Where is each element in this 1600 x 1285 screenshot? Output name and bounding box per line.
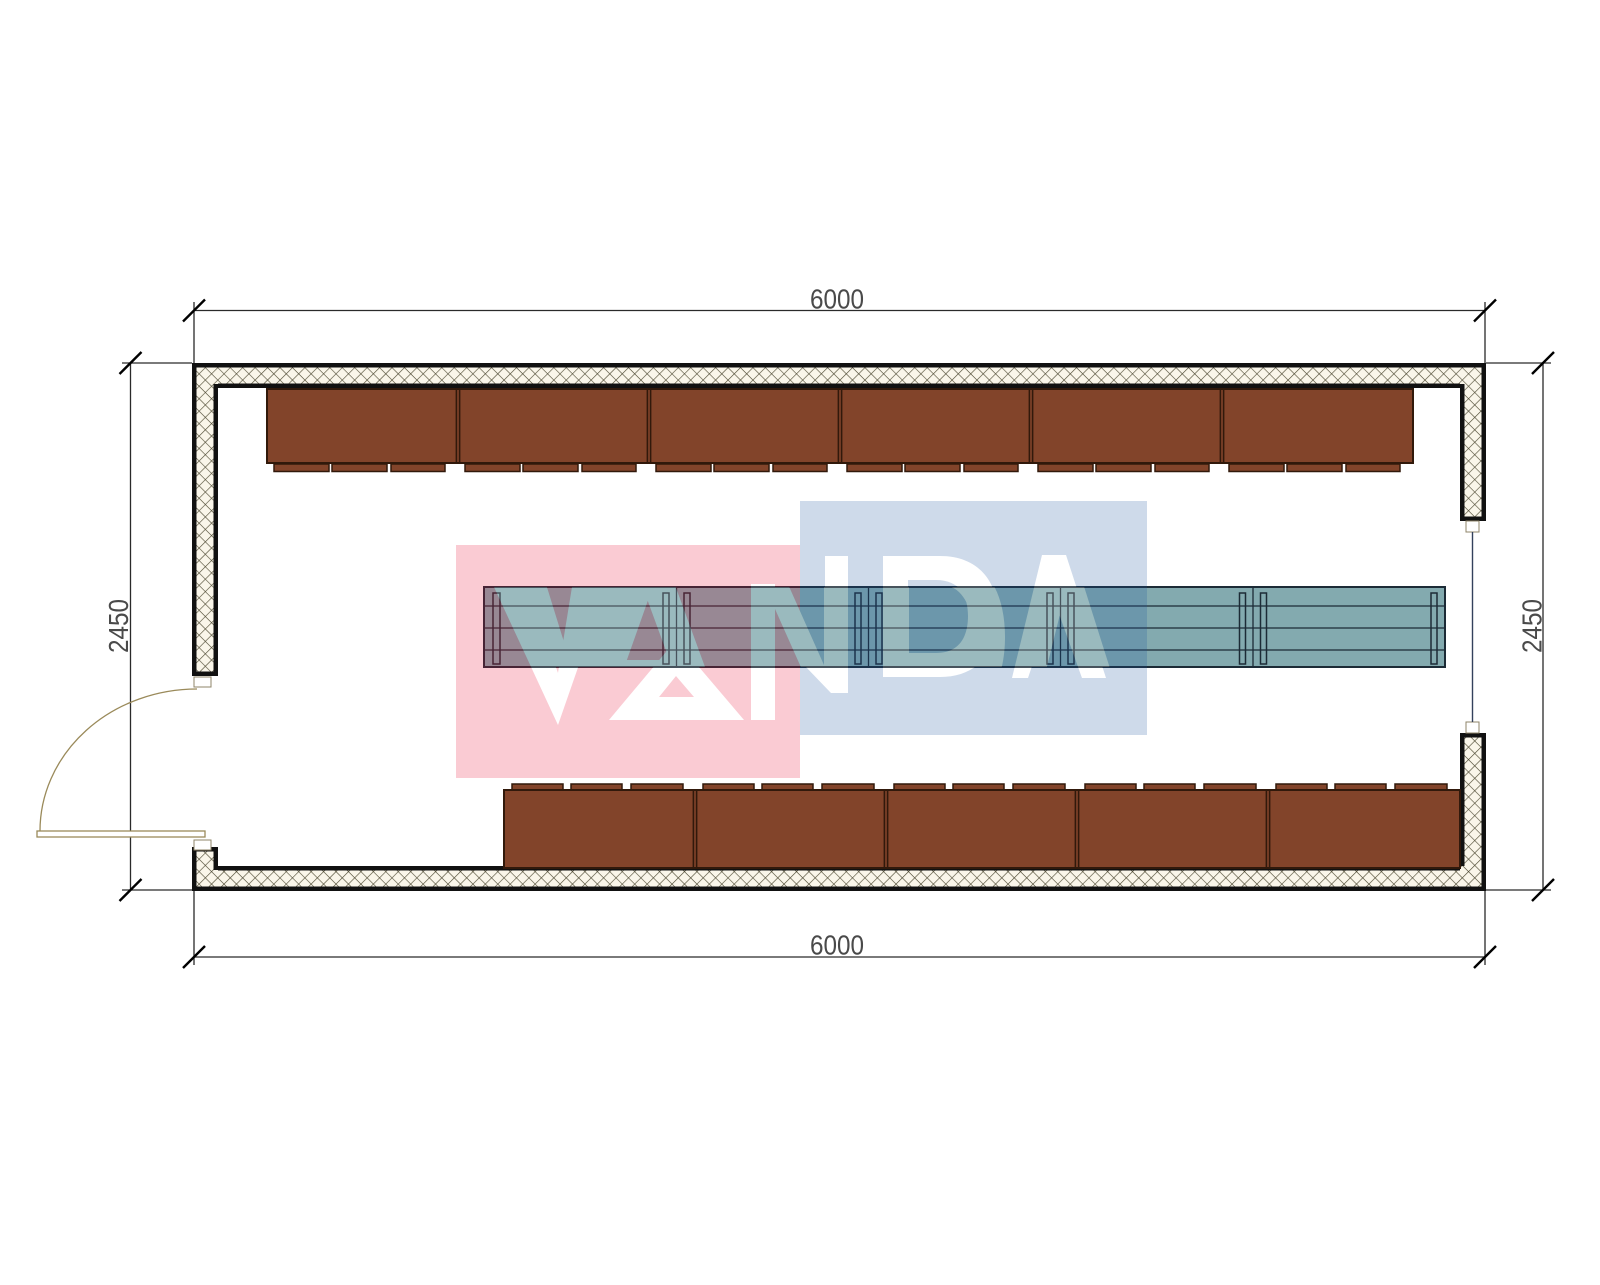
svg-text:6000: 6000 — [810, 930, 864, 961]
svg-text:6000: 6000 — [810, 284, 864, 315]
svg-text:2450: 2450 — [103, 599, 134, 653]
svg-text:2450: 2450 — [1517, 599, 1548, 653]
